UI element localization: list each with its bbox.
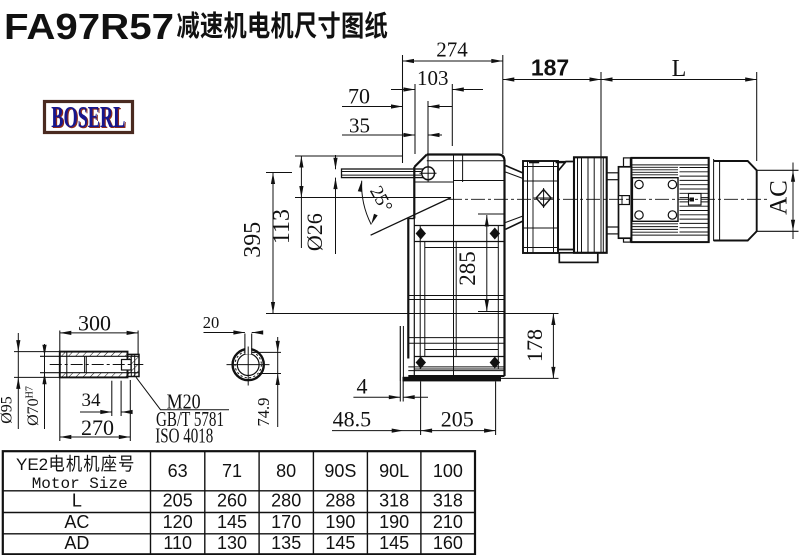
svg-text:280: 280 <box>271 490 301 510</box>
svg-text:205: 205 <box>163 490 193 510</box>
svg-text:AC: AC <box>64 512 89 532</box>
svg-text:L: L <box>72 490 82 510</box>
svg-text:285: 285 <box>455 251 480 286</box>
svg-text:AC: AC <box>766 180 793 215</box>
svg-text:103: 103 <box>417 66 449 90</box>
svg-text:318: 318 <box>379 490 409 510</box>
svg-text:210: 210 <box>433 512 463 532</box>
svg-text:395: 395 <box>240 222 266 258</box>
svg-text:AD: AD <box>64 533 89 553</box>
svg-text:135: 135 <box>271 533 301 553</box>
svg-text:4: 4 <box>357 374 368 399</box>
svg-text:300: 300 <box>78 310 111 335</box>
svg-text:288: 288 <box>325 490 355 510</box>
svg-text:190: 190 <box>325 512 355 532</box>
svg-text:145: 145 <box>379 533 409 553</box>
svg-text:Ø70H7: Ø70H7 <box>25 386 43 426</box>
svg-text:80: 80 <box>276 461 296 481</box>
svg-text:120: 120 <box>163 512 193 532</box>
svg-text:190: 190 <box>379 512 409 532</box>
svg-text:70: 70 <box>348 83 370 108</box>
svg-text:130: 130 <box>217 533 247 553</box>
svg-text:187: 187 <box>531 55 569 81</box>
svg-text:48.5: 48.5 <box>333 407 372 432</box>
svg-text:178: 178 <box>522 329 547 362</box>
svg-text:90S: 90S <box>324 461 356 481</box>
svg-text:90L: 90L <box>379 461 409 481</box>
svg-text:318: 318 <box>433 490 463 510</box>
svg-text:Ø26: Ø26 <box>302 213 327 251</box>
svg-text:25°: 25° <box>365 183 396 216</box>
svg-text:71: 71 <box>222 461 242 481</box>
svg-text:110: 110 <box>163 533 192 553</box>
svg-text:BOSERL: BOSERL <box>51 99 125 134</box>
svg-text:63: 63 <box>168 461 188 481</box>
svg-text:Ø95: Ø95 <box>0 396 16 424</box>
svg-text:34: 34 <box>82 390 102 411</box>
svg-text:145: 145 <box>217 512 247 532</box>
svg-text:205: 205 <box>441 407 474 432</box>
svg-text:170: 170 <box>271 512 301 532</box>
svg-text:35: 35 <box>349 114 370 138</box>
svg-text:20: 20 <box>203 313 220 332</box>
svg-text:74.9: 74.9 <box>254 398 273 427</box>
svg-text:270: 270 <box>81 415 114 440</box>
svg-text:145: 145 <box>325 533 355 553</box>
svg-text:113: 113 <box>269 209 295 244</box>
svg-text:100: 100 <box>433 461 463 481</box>
svg-text:FA97R57: FA97R57 <box>4 6 174 47</box>
svg-text:ISO 4018: ISO 4018 <box>155 424 213 448</box>
svg-text:L: L <box>672 56 687 82</box>
svg-text:YE2: YE2 <box>16 455 48 474</box>
svg-text:260: 260 <box>217 490 247 510</box>
svg-text:160: 160 <box>433 533 463 553</box>
svg-text:274: 274 <box>436 38 468 62</box>
